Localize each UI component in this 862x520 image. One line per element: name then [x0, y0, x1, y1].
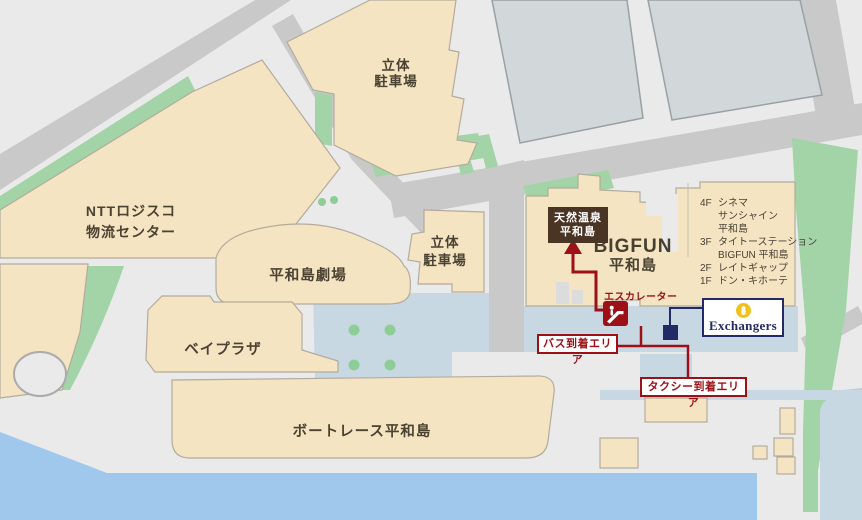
building-bayplaza	[146, 296, 338, 372]
exchangers-logo-box: Exchangers	[702, 298, 784, 337]
walkway-tab-b	[572, 290, 583, 304]
exchangers-wordmark: Exchangers	[704, 318, 782, 333]
label-bay-plaza: ベイプラザ	[184, 338, 262, 359]
road-central-vertical	[489, 160, 524, 352]
escalator-icon	[603, 301, 628, 326]
label-parking-mid: 立体 駐車場	[423, 234, 467, 270]
taxi-arrival-tag: タクシー到着エリア	[640, 377, 747, 397]
onsen-badge: 天然温泉 平和島	[548, 207, 608, 243]
warehouse-west	[492, 0, 643, 143]
plaza-se-corner	[820, 398, 862, 520]
plaza-west	[313, 293, 489, 378]
floor-row: 1F ドン・キホーテ	[700, 275, 817, 288]
warehouse-east	[648, 0, 822, 120]
heiwajima-area-map: NTTロジスコ 物流センター 立体 駐車場 立体 駐車場 平和島劇場 ベイプラザ…	[0, 0, 862, 520]
floor-row: 3F タイトーステーション	[700, 236, 817, 249]
building-small-6	[777, 457, 795, 474]
exchangers-coin-icon	[736, 303, 751, 318]
label-ntt-logistics: NTTロジスコ 物流センター	[86, 201, 176, 243]
building-small-3	[780, 408, 795, 434]
exchangers-map-marker	[663, 325, 678, 340]
building-small-4	[753, 446, 767, 459]
building-boatrace	[172, 376, 554, 458]
building-small-2	[600, 438, 638, 468]
building-small-5	[774, 438, 793, 456]
floor-row: BIGFUN 平和島	[700, 249, 817, 262]
label-parking-top: 立体 駐車場	[374, 58, 418, 90]
dock-arc	[14, 352, 66, 396]
label-theater: 平和島劇場	[269, 264, 347, 285]
floor-row: 4F シネマ	[700, 197, 817, 210]
bus-arrival-tag: バス到着エリア	[537, 334, 618, 354]
floor-row: 平和島	[700, 223, 817, 236]
floor-row: サンシャイン	[700, 210, 817, 223]
bigfun-floor-directory: 4F シネマ サンシャイン 平和島 3F タイトーステーション BIGFUN 平…	[700, 197, 817, 288]
plaza-taxi-path	[640, 354, 692, 378]
walkway-tab-a	[556, 282, 569, 304]
floor-row: 2F レイトギャップ	[700, 262, 817, 275]
label-boat-race: ボートレース平和島	[293, 420, 432, 441]
